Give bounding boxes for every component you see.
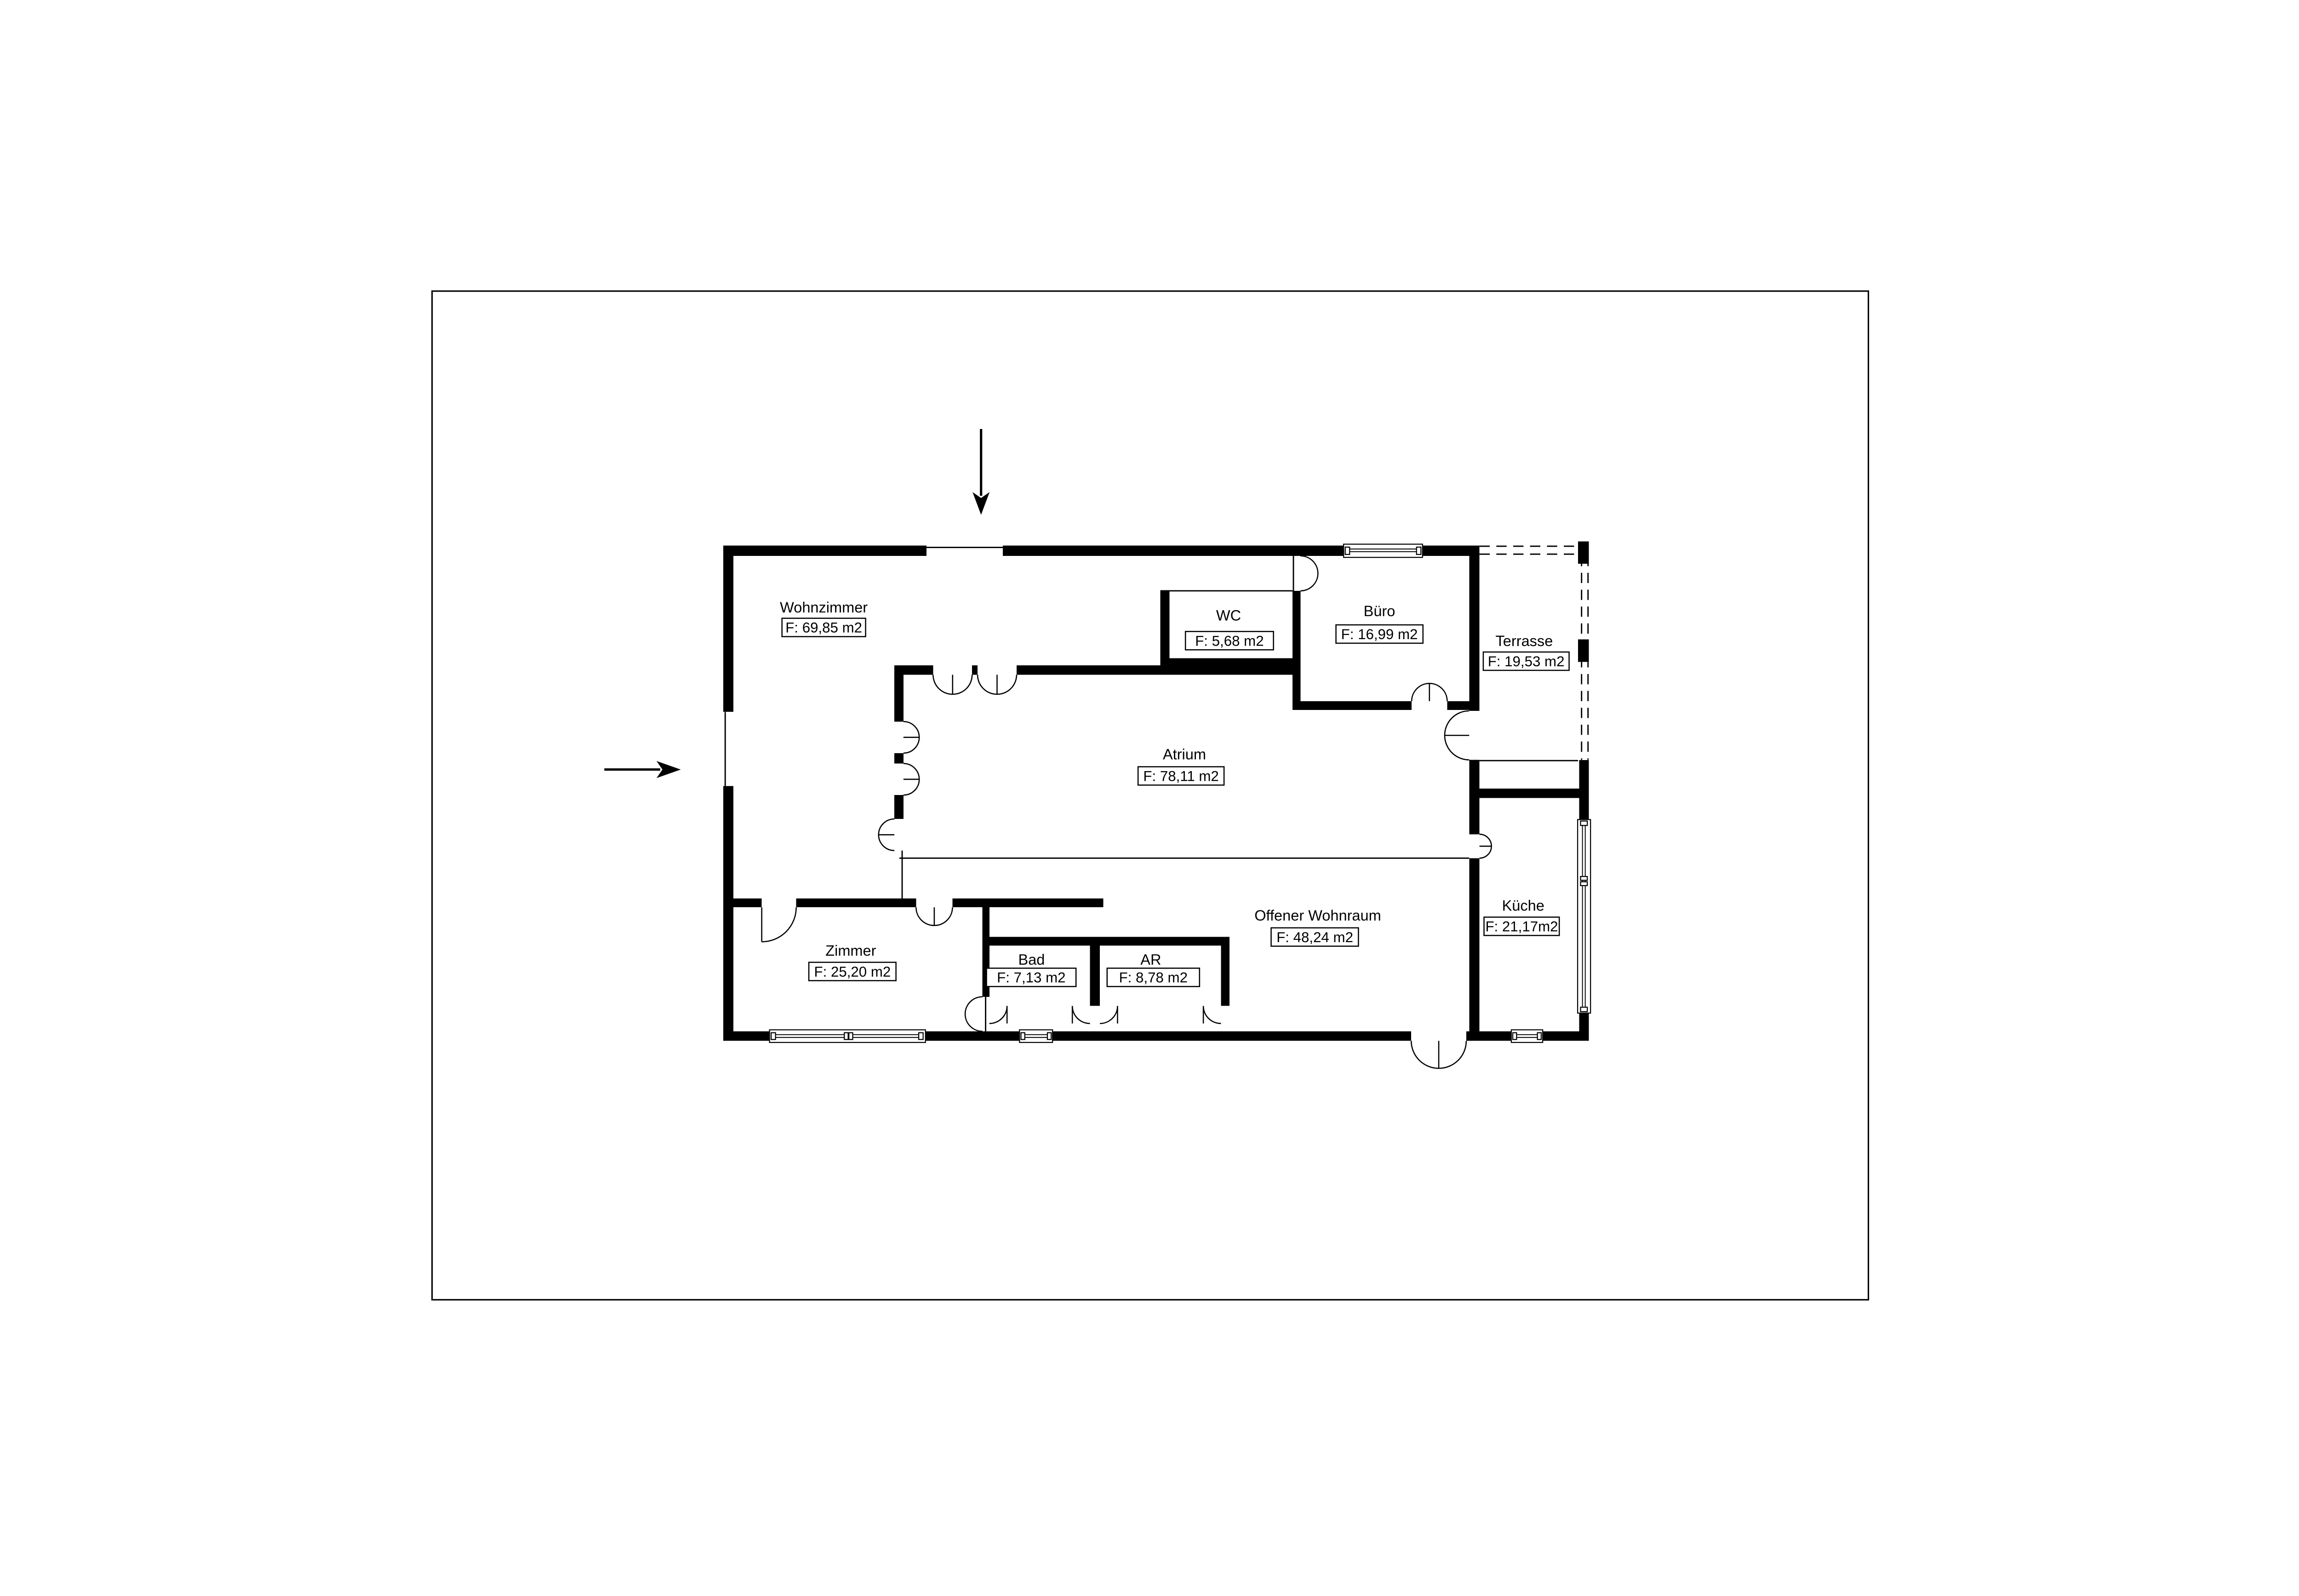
room-area: F: 5,68 m2: [1195, 633, 1264, 649]
room-area: F: 19,53 m2: [1488, 653, 1565, 669]
floor-plan-canvas: Wohnzimmer F: 69,85 m2 WC F: 5,68 m2 Bür…: [0, 0, 2299, 1596]
room-area: F: 16,99 m2: [1341, 626, 1418, 642]
room-name: WC: [1216, 607, 1241, 624]
window-bottom-zimmer: [770, 1030, 926, 1042]
room-area: F: 48,24 m2: [1276, 929, 1353, 945]
room-area: F: 7,13 m2: [997, 970, 1065, 986]
room-area: F: 21,17m2: [1485, 919, 1558, 935]
room-name: AR: [1140, 951, 1161, 968]
room-name: Wohnzimmer: [780, 599, 868, 616]
window-right-kueche: [1578, 819, 1590, 1013]
room-name: Küche: [1502, 898, 1544, 914]
room-name: Offener Wohnraum: [1254, 907, 1381, 924]
room-name: Zimmer: [825, 943, 876, 959]
room-area: F: 8,78 m2: [1119, 970, 1188, 986]
room-area: F: 69,85 m2: [785, 620, 862, 636]
room-name: Bad: [1018, 951, 1045, 968]
window-bottom-kueche: [1511, 1030, 1543, 1042]
window-bottom-bad: [1019, 1030, 1052, 1042]
room-label-wohnzimmer: Wohnzimmer F: 69,85 m2: [780, 599, 868, 637]
window-top-buero: [1344, 544, 1423, 557]
room-name: Büro: [1364, 603, 1395, 619]
room-area: F: 25,20 m2: [814, 964, 891, 980]
sheet-border: [432, 291, 1869, 1300]
room-name: Terrasse: [1496, 633, 1553, 649]
room-area: F: 78,11 m2: [1143, 768, 1218, 784]
room-name: Atrium: [1163, 746, 1206, 763]
